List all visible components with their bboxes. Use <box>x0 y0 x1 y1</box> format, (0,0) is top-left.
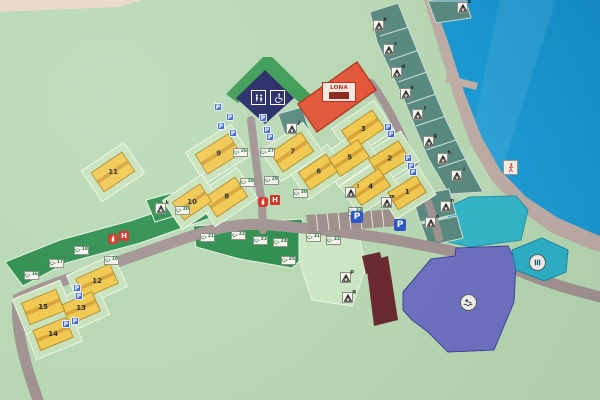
caravan-pitch-number: 22 <box>239 233 245 238</box>
caravan-icon <box>282 258 288 263</box>
tent-pitch-marker: j <box>286 123 297 134</box>
caravan-pitch-number: 20 <box>183 208 189 213</box>
parking-sign: P <box>394 219 406 231</box>
caravan-pitch-number: 17 <box>57 261 63 266</box>
tent-pitch-marker: g <box>423 136 434 147</box>
building-number: 1 <box>405 189 410 196</box>
toilets-icon <box>251 90 266 105</box>
fire-extinguisher-sign <box>258 197 268 207</box>
caravan-icon <box>254 238 260 243</box>
tent-icon <box>402 90 410 98</box>
caravan-pitch-marker: 26 <box>233 148 248 157</box>
caravan-pitch-marker: 28 <box>240 178 255 187</box>
tent-pitch-id: n <box>450 198 454 204</box>
building-number: 4 <box>368 184 373 191</box>
tent-pitch-id: l <box>357 184 359 190</box>
tent-pitch-id: c <box>394 41 397 47</box>
pool-icon <box>460 294 477 311</box>
caravan-pitch-marker: 29 <box>264 176 279 185</box>
small-parking-tag: P <box>214 103 222 111</box>
small-parking-tag: P <box>62 320 70 328</box>
tent-icon <box>414 111 422 119</box>
caravan-pitch-marker: 16 <box>24 271 39 280</box>
main-building-label: LONA <box>322 82 356 102</box>
tent-pitch-marker: q <box>342 292 353 303</box>
building-number: 15 <box>38 304 48 311</box>
caravan-pitch-number: 16 <box>32 273 38 278</box>
tent-pitch-id: p <box>350 269 354 275</box>
caravan-pitch-number: 21 <box>208 235 214 240</box>
small-parking-tag: P <box>217 122 225 130</box>
tent-pitch-id: i <box>463 167 465 173</box>
tent-pitch-id: q <box>352 289 356 295</box>
caravan-pitch-number: 29 <box>272 178 278 183</box>
building-number: 7 <box>290 149 295 156</box>
tent-icon <box>459 4 467 12</box>
caravan-icon <box>294 191 300 196</box>
tent-pitch-marker: n <box>440 201 451 212</box>
tent-icon <box>157 205 165 213</box>
caravan-icon <box>234 150 240 155</box>
caravan-pitch-marker: 25 <box>281 256 296 265</box>
caravan-pitch-marker: 20 <box>175 206 190 215</box>
tent-pitch-marker: b <box>373 20 384 31</box>
caravan-icon <box>176 208 182 213</box>
caravan-pitch-number: 25 <box>289 258 295 263</box>
hydrant-sign: H <box>270 195 280 205</box>
tent-pitch-id: b <box>383 17 387 23</box>
tent-pitch-marker: c <box>383 44 394 55</box>
small-parking-tag: P <box>266 133 274 141</box>
tent-pitch-id: o <box>436 214 439 220</box>
small-parking-tag: P <box>387 130 395 138</box>
caravan-icon <box>327 238 333 243</box>
small-parking-tag: P <box>229 129 237 137</box>
tent-icon <box>453 172 461 180</box>
caravan-pitch-marker: 21 <box>200 233 215 242</box>
caravan-pitch-number: 32 <box>334 238 340 243</box>
tent-pitch-marker: h <box>437 153 448 164</box>
caravan-pitch-number: 18 <box>82 248 88 253</box>
tent-pitch-marker: f <box>412 109 423 120</box>
small-parking-tag: P <box>404 154 412 162</box>
building-number: 14 <box>48 331 58 338</box>
small-parking-tag: P <box>226 113 234 121</box>
tent-pitch-marker: i <box>451 170 462 181</box>
building-number: 10 <box>187 199 197 206</box>
small-parking-tag: P <box>71 317 79 325</box>
tent-icon <box>344 294 352 302</box>
building-number: 11 <box>108 169 118 176</box>
fire-extinguisher-sign <box>108 234 118 244</box>
caravan-pitch-number: 19 <box>112 258 118 263</box>
caravan-pitch-marker: 27 <box>260 148 275 157</box>
tent-pitch-marker: d <box>391 67 402 78</box>
tent-pitch-id: k <box>166 200 169 206</box>
caravan-pitch-number: 24 <box>281 240 287 245</box>
small-parking-tag: P <box>75 292 83 300</box>
caravan-pitch-number: 23 <box>261 238 267 243</box>
tent-icon <box>439 155 447 163</box>
tent-icon <box>347 189 355 197</box>
tent-pitch-marker: a <box>457 2 468 13</box>
map-overlay: LONA 123456789101112131415abcdefghijklmn… <box>0 0 600 400</box>
tent-pitch-id: m <box>390 194 395 200</box>
tent-pitch-marker: k <box>155 203 166 214</box>
small-parking-tag: P <box>73 284 81 292</box>
tent-pitch-id: j <box>298 120 300 126</box>
tent-icon <box>288 125 296 133</box>
harbor-icon <box>529 254 546 271</box>
main-building-label-bar <box>329 92 349 99</box>
tent-pitch-marker: o <box>425 217 436 228</box>
tent-pitch-marker: p <box>340 272 351 283</box>
caravan-icon <box>274 240 280 245</box>
tent-pitch-id: a <box>468 0 471 5</box>
tent-pitch-marker: l <box>345 187 356 198</box>
building-number: 12 <box>92 278 102 285</box>
tent-pitch-id: d <box>401 64 405 70</box>
caravan-icon <box>307 235 313 240</box>
tent-pitch-id: h <box>447 150 451 156</box>
caravan-pitch-marker: 24 <box>273 238 288 247</box>
building-number: 9 <box>216 151 221 158</box>
tent-icon <box>425 138 433 146</box>
tent-icon <box>375 22 383 30</box>
beach-access-sign <box>503 160 518 175</box>
fire-extinguisher-icon <box>109 235 117 243</box>
caravan-pitch-marker: 22 <box>231 231 246 240</box>
caravan-icon <box>265 178 271 183</box>
caravan-pitch-marker: 19 <box>104 256 119 265</box>
tent-icon <box>442 203 450 211</box>
caravan-icon <box>105 258 111 263</box>
caravan-icon <box>50 261 56 266</box>
building-number: 8 <box>224 194 229 201</box>
wheelchair-icon <box>270 90 285 105</box>
caravan-icon <box>25 273 31 278</box>
caravan-pitch-marker: 32 <box>326 236 341 245</box>
fire-extinguisher-icon <box>259 198 267 206</box>
tent-icon <box>385 46 393 54</box>
tent-pitch-id: g <box>433 133 437 139</box>
caravan-pitch-number: 30 <box>301 191 307 196</box>
caravan-icon <box>75 248 81 253</box>
building-number: 6 <box>316 169 321 176</box>
tent-icon <box>342 274 350 282</box>
caravan-pitch-marker: 18 <box>74 246 89 255</box>
caravan-icon <box>261 150 267 155</box>
caravan-icon <box>201 235 207 240</box>
building-number: 2 <box>387 156 392 163</box>
parking-sign: P <box>351 211 363 223</box>
caravan-pitch-marker: 31 <box>306 233 321 242</box>
caravan-pitch-number: 28 <box>248 180 254 185</box>
tent-pitch-marker: m <box>381 197 392 208</box>
building-number: 13 <box>76 305 86 312</box>
caravan-pitch-marker: 30 <box>293 189 308 198</box>
tent-pitch-id: e <box>411 85 414 91</box>
caravan-icon <box>232 233 238 238</box>
small-parking-tag: P <box>259 114 267 122</box>
hydrant-sign: H <box>119 231 129 241</box>
caravan-pitch-marker: 23 <box>253 236 268 245</box>
small-parking-tag: P <box>409 168 417 176</box>
tent-icon <box>393 69 401 77</box>
building-number: 5 <box>347 155 352 162</box>
main-building-name: LONA <box>324 85 354 91</box>
caravan-pitch-number: 31 <box>314 235 320 240</box>
caravan-icon <box>241 180 247 185</box>
caravan-pitch-number: 26 <box>241 150 247 155</box>
campsite-map-photo: LONA 123456789101112131415abcdefghijklmn… <box>0 0 600 400</box>
tent-icon <box>427 219 435 227</box>
tent-pitch-id: f <box>424 106 426 112</box>
tent-pitch-marker: e <box>400 88 411 99</box>
caravan-pitch-marker: 17 <box>49 259 64 268</box>
caravan-pitch-number: 27 <box>268 150 274 155</box>
building-number: 3 <box>361 126 366 133</box>
